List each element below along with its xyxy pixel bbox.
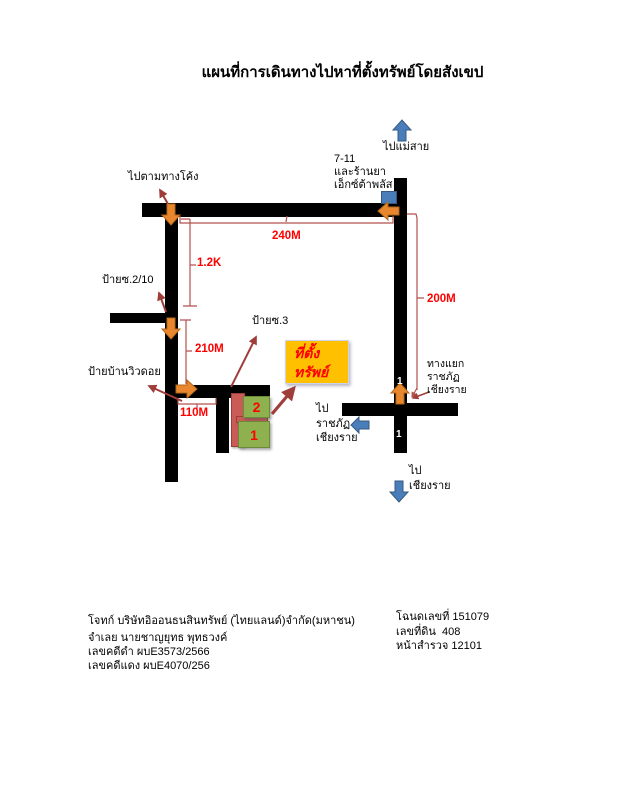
road-branch-soi-2-10 [110,313,178,323]
label-seven-eleven: 7-11 และร้านยา เอ็กซ์ต้าพลัส [334,153,393,192]
footer-plaintiff: โจทก์ บริษัทอิออนธนสินทรัพย์ (ไทยแลนด์)จ… [88,614,355,629]
distance-210m: 210M [195,343,224,355]
label-junction: ทางแยก ราชภัฏ เชียงราย [427,358,467,397]
property-location-callout: ที่ตั้ง ทรัพย์ [285,340,349,384]
measure-200m-bracket [407,214,424,390]
footer-red-case-no: เลขคดีแดง ผบE4070/256 [88,659,210,674]
label-sign-soi-3: ป้ายซ.3 [252,315,288,328]
measure-210m-bracket [180,320,192,384]
route-number-lower: 1 [396,429,402,440]
measure-240m-bracket [180,216,393,223]
footer-defendant: จำเลย นายชาญยุทธ พุทธวงค์ [88,631,227,646]
route-number-upper: 1 [397,376,403,387]
footer-land-no: เลขที่ดิน 408 [396,625,460,640]
blue-arrow-up-mae-sai-icon [393,120,411,141]
label-sign-soi-2-10: ป้ายซ.2/10 [102,274,154,287]
label-to-ratchaphat: ไป ราชภัฏ เชียงราย [316,402,358,446]
measure-200m-arrowhead [412,388,417,397]
map-annotation-overlay [0,0,619,800]
plot-1-box: 1 [238,421,270,448]
road-top [142,203,407,217]
label-to-chiang-rai: ไป เชียงราย [409,464,451,494]
distance-1-2k: 1.2K [197,257,221,269]
seven-eleven-marker [381,191,397,204]
sign-soi-3-arrow-icon [231,337,256,387]
footer-black-case-no: เลขคดีดำ ผบE3573/2566 [88,645,210,660]
label-follow-curve: ไปตามทางโค้ง [128,171,199,184]
sketch-map-page: แผนที่การเดินทางไปหาที่ตั้งทรัพย์โดยสังเ… [0,0,619,800]
footer-deed-no: โฉนดเลขที่ 151079 [396,610,489,625]
distance-200m: 200M [427,293,456,305]
plot-2-label: 2 [253,399,261,415]
footer-survey-page: หน้าสำรวจ 12101 [396,639,482,654]
distance-240m: 240M [272,230,301,242]
distance-110m: 110M [180,407,208,419]
label-sign-baan-view-doi: ป้ายบ้านวิวดอย [88,366,161,379]
road-cross-junction [342,403,458,416]
road-left-vertical [165,203,178,482]
page-title: แผนที่การเดินทางไปหาที่ตั้งทรัพย์โดยสังเ… [65,60,619,84]
plot-1-label: 1 [250,427,258,443]
plot-2-box: 2 [243,396,270,418]
measure-1-2k-bracket [181,219,197,306]
property-pointer-arrow-icon [272,388,294,414]
blue-arrow-down-chiang-rai-icon [390,481,408,502]
road-stub-property [216,395,229,453]
